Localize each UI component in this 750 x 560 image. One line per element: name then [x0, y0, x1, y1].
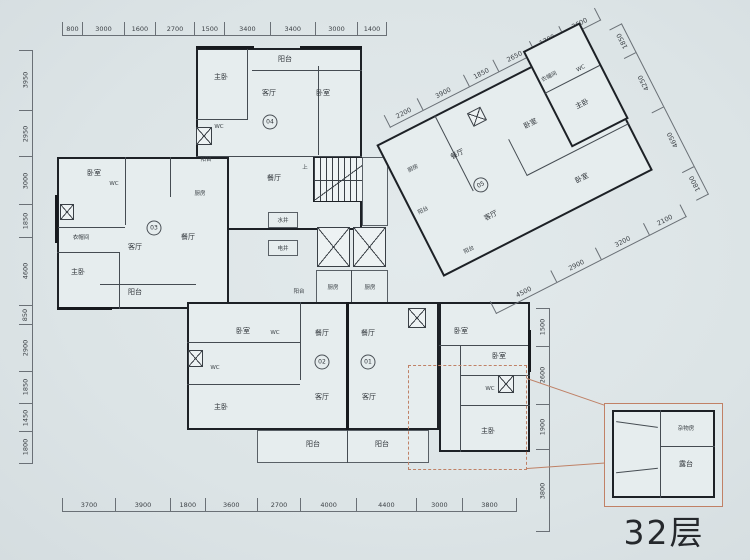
- dim-value: 1500: [201, 25, 218, 33]
- partition: [439, 345, 530, 346]
- dim-chain-right: 1500260019003800: [536, 308, 550, 532]
- dim-value: 1800: [688, 174, 703, 192]
- dim-segment: 3400: [225, 22, 270, 35]
- balcony-strip: [257, 430, 429, 463]
- wall-accent: [57, 307, 112, 310]
- dim-value: 1850: [22, 212, 30, 229]
- dining-label: 餐厅: [361, 328, 375, 338]
- unit-02-number: 02: [315, 355, 330, 370]
- balcony-label: 阳台: [278, 54, 292, 64]
- dining-label: 餐厅: [267, 173, 281, 183]
- balcony-label: 阳台: [306, 439, 320, 449]
- dim-segment: 3900: [116, 498, 171, 511]
- dim-value: 1600: [132, 25, 149, 33]
- dim-segment: 4600: [19, 238, 32, 306]
- dim-value: 4650: [665, 131, 680, 149]
- dim-value: 3000: [431, 501, 448, 509]
- dim-segment: 2100: [644, 205, 686, 235]
- unit-03-number: 03: [147, 221, 162, 236]
- dim-segment: 4250: [624, 53, 663, 114]
- partition: [57, 252, 119, 253]
- dim-value: 3600: [223, 501, 240, 509]
- fixture-box: [60, 204, 74, 220]
- dim-value: 1400: [364, 25, 381, 33]
- partition: [187, 384, 300, 385]
- dim-segment: 3600: [206, 498, 258, 511]
- dim-value: 4500: [514, 284, 532, 299]
- electric-shaft-label: 电井: [277, 244, 288, 252]
- dim-value: 1500: [539, 319, 547, 336]
- partition: [252, 70, 362, 71]
- partition: [100, 284, 196, 285]
- dim-value: 2700: [167, 25, 184, 33]
- dim-value: 3000: [22, 172, 30, 189]
- dim-value: 2200: [394, 105, 412, 120]
- dim-segment: 1400: [358, 22, 386, 35]
- partition: [247, 48, 248, 120]
- partition: [187, 342, 300, 343]
- dim-value: 3900: [434, 85, 452, 100]
- dim-segment: 2700: [258, 498, 301, 511]
- partition: [125, 157, 126, 225]
- core-corridor: [362, 157, 388, 226]
- dim-value: 3700: [81, 501, 98, 509]
- living-room-label: 客厅: [315, 392, 329, 402]
- dim-value: 4250: [636, 74, 651, 92]
- elevator-1: [317, 227, 350, 267]
- dim-value: 3400: [239, 25, 256, 33]
- dim-segment: 2700: [156, 22, 196, 35]
- dim-segment: 4400: [357, 498, 417, 511]
- dim-segment: 1850: [19, 372, 32, 405]
- dim-value: 850: [21, 309, 29, 321]
- bedroom-label: 卧室: [236, 326, 250, 336]
- dim-segment: 1800: [171, 498, 206, 511]
- dim-segment: 1450: [19, 404, 32, 432]
- wall-accent: [300, 46, 362, 49]
- dim-segment: 1500: [195, 22, 225, 35]
- dim-value: 1800: [22, 439, 30, 456]
- dim-value: 4600: [22, 263, 30, 280]
- terrace-label: 露台: [679, 459, 693, 469]
- partition: [660, 446, 715, 447]
- dim-value: 1450: [22, 409, 30, 426]
- elevator-2: [353, 227, 386, 267]
- dim-value: 3000: [95, 25, 112, 33]
- dim-segment: 3800: [536, 450, 549, 531]
- partition: [351, 270, 352, 306]
- dim-segment: 4650: [652, 108, 694, 173]
- dim-segment: 3800: [463, 498, 516, 511]
- wc-label: WC: [270, 330, 279, 336]
- dim-segment: 3700: [63, 498, 116, 511]
- stairs-up-label: 上: [302, 163, 308, 171]
- dim-segment: 3000: [316, 22, 358, 35]
- living-room-label: 客厅: [128, 242, 142, 252]
- kitchen-label: 厨房: [364, 283, 375, 291]
- partition: [119, 252, 120, 309]
- dim-segment: 1800: [682, 167, 707, 200]
- bedroom-label: 卧室: [316, 88, 330, 98]
- party-wall: [346, 302, 349, 430]
- master-bedroom-label: 主卧: [214, 402, 228, 412]
- dim-value: 1800: [180, 501, 197, 509]
- unit-04-number: 04: [263, 115, 278, 130]
- balcony-label: 阳台: [375, 439, 389, 449]
- dim-value: 3200: [613, 234, 631, 249]
- dim-value: 3800: [481, 501, 498, 509]
- dim-segment: 1850: [464, 59, 500, 86]
- dim-segment: 1800: [19, 432, 32, 463]
- dim-segment: 850: [19, 306, 32, 326]
- kitchen-label: 厨房: [327, 283, 338, 291]
- dim-value: 2950: [22, 125, 30, 142]
- dim-value: 1850: [472, 66, 490, 81]
- dim-value: 2100: [655, 212, 673, 227]
- dim-segment: 2950: [19, 111, 32, 158]
- floorplan-canvas: 80030001600270015003400340030001400 3950…: [0, 0, 750, 560]
- wall-accent: [528, 330, 531, 372]
- dim-value: 800: [66, 25, 78, 33]
- dim-chain-top: 80030001600270015003400340030001400: [62, 22, 387, 36]
- unit-01-number: 01: [361, 355, 376, 370]
- dim-value: 2600: [539, 367, 547, 384]
- dim-value: 1900: [539, 419, 547, 436]
- dim-segment: 1850: [19, 205, 32, 238]
- dim-segment: 4000: [301, 498, 357, 511]
- inset-caption-floor32: 32层: [624, 506, 705, 554]
- master-bedroom-label: 主卧: [71, 267, 85, 277]
- partition: [347, 430, 348, 463]
- dim-value: 4400: [378, 501, 395, 509]
- dining-label: 餐厅: [181, 232, 195, 242]
- living-room-label: 客厅: [362, 392, 376, 402]
- storage-room-label: 杂物房: [678, 424, 695, 432]
- dim-value: 2650: [505, 49, 523, 64]
- dim-value: 3000: [328, 25, 345, 33]
- fixture-box: [188, 350, 203, 367]
- dim-value: 3800: [539, 482, 547, 499]
- dim-segment: 1500: [536, 309, 549, 347]
- dim-value: 1850: [22, 379, 30, 396]
- dim-segment: 2900: [551, 247, 602, 281]
- dim-value: 2700: [271, 501, 288, 509]
- dim-value: 3400: [284, 25, 301, 33]
- dim-segment: 2200: [385, 98, 424, 126]
- wc-label: WC: [109, 181, 118, 187]
- dim-segment: 3400: [271, 22, 316, 35]
- dim-segment: 3200: [596, 223, 650, 259]
- partition: [318, 66, 319, 155]
- balcony-label: 阳台: [293, 287, 304, 295]
- balcony-label: 阳台: [128, 287, 142, 297]
- dim-value: 3900: [135, 501, 152, 509]
- fixture-box: [196, 127, 212, 145]
- dim-segment: 3000: [83, 22, 125, 35]
- wc-label: WC: [210, 365, 219, 371]
- dim-value: 3950: [22, 72, 30, 89]
- partition: [170, 157, 171, 197]
- cloakroom-label: 衣帽间: [73, 233, 90, 241]
- dim-segment: 1600: [125, 22, 156, 35]
- dim-value: 4000: [320, 501, 337, 509]
- wc-label: WC: [214, 124, 223, 130]
- dim-segment: 2900: [19, 325, 32, 371]
- dim-segment: 3950: [19, 51, 32, 111]
- dim-value: 2900: [567, 257, 585, 272]
- partition: [300, 302, 301, 380]
- highlight-dashed-rect: [408, 365, 527, 470]
- wall-accent: [196, 46, 254, 49]
- partition: [196, 119, 248, 120]
- dim-value: 1850: [615, 32, 630, 50]
- partition: [57, 227, 125, 228]
- master-bedroom-label: 主卧: [214, 72, 228, 82]
- fixture-box: [408, 308, 426, 328]
- bedroom-label: 卧室: [492, 351, 506, 361]
- dim-segment: 2600: [536, 347, 549, 406]
- balcony-label: 阳台: [200, 155, 211, 163]
- dim-segment: 1900: [536, 405, 549, 450]
- dim-value: 2900: [22, 340, 30, 357]
- partition: [660, 410, 661, 498]
- bedroom-label: 卧室: [87, 168, 101, 178]
- dim-chain-bottom: 370039001800360027004000440030003800: [62, 498, 517, 512]
- wall-accent: [55, 195, 58, 243]
- water-shaft-label: 水井: [277, 216, 288, 224]
- dim-segment: 3000: [417, 498, 463, 511]
- dim-segment: 800: [63, 22, 83, 35]
- kitchen-label: 厨房: [194, 189, 205, 197]
- living-room-label: 客厅: [262, 88, 276, 98]
- bedroom-label: 卧室: [454, 326, 468, 336]
- dim-segment: 3000: [19, 157, 32, 204]
- dining-label: 餐厅: [315, 328, 329, 338]
- dim-chain-left: 395029503000185046008502900185014501800: [19, 50, 33, 464]
